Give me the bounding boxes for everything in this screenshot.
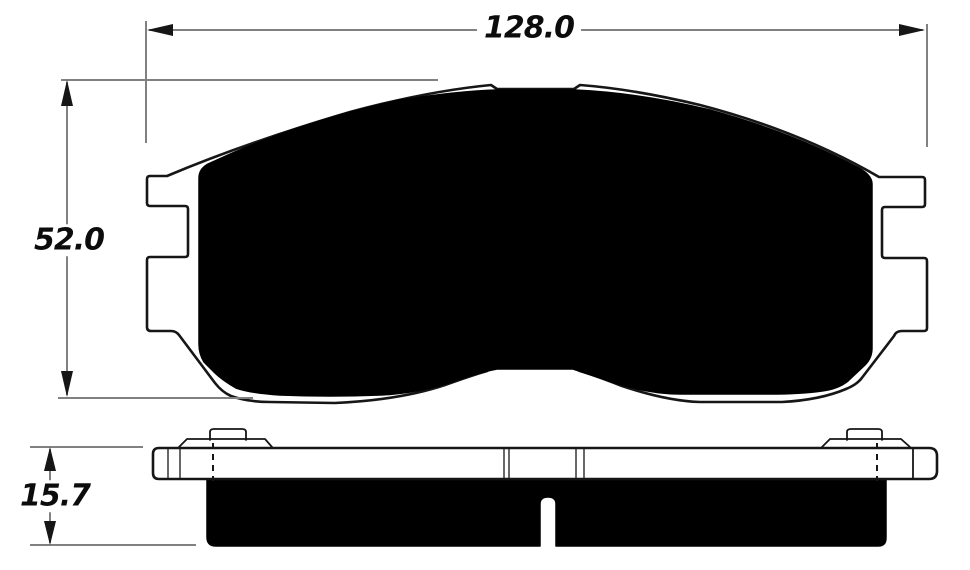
shim-clip-right-base [822,439,910,447]
height-arrow-bottom [61,371,73,397]
friction-material-side [207,480,886,546]
shim-clip-left-base [179,439,272,447]
width-arrow-right [899,24,925,36]
width-dimension-label: 128.0 [477,12,581,44]
friction-material-front [199,90,872,396]
backing-plate-side [153,448,937,479]
side-view [153,429,937,546]
width-arrow-left [147,24,173,36]
height-dimension-label: 52.0 [27,224,111,256]
thickness-arrow-bottom [44,521,56,545]
technical-drawing-canvas: 128.0 52.0 15.7 [0,0,970,570]
thickness-dimension-label: 15.7 [13,480,97,512]
brake-pad-drawing [0,0,970,570]
thickness-arrow-top [44,447,56,471]
height-arrow-top [61,80,73,106]
front-view [147,85,927,403]
